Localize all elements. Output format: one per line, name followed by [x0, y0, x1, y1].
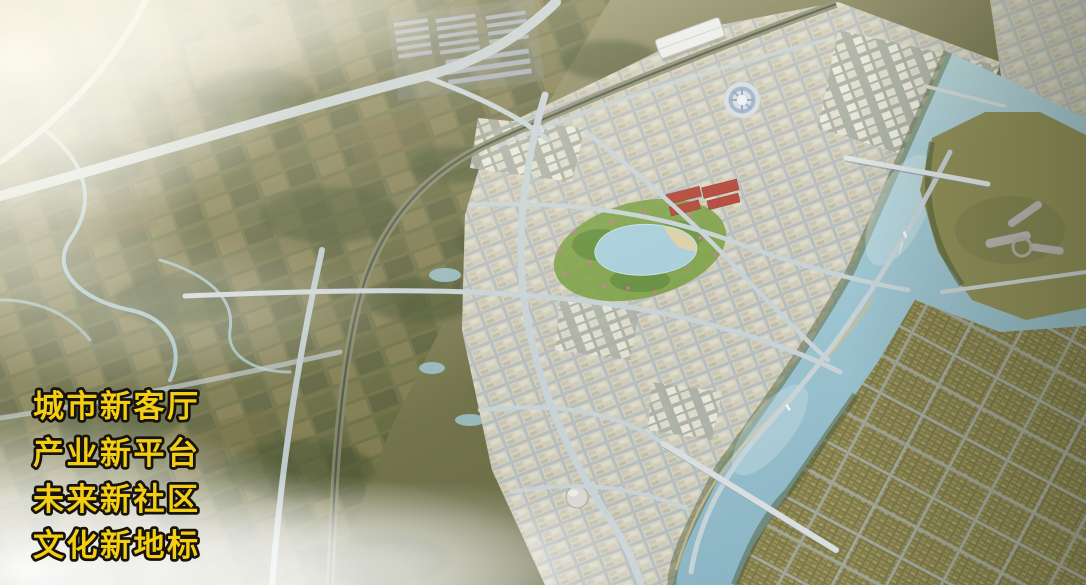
slogan-line-4: 文化新地标 — [33, 528, 201, 564]
slogan-line-1: 城市新客厅 — [33, 389, 201, 425]
slogan-line-3: 未来新社区 — [33, 482, 201, 518]
render-canvas: 城市新客厅 产业新平台 未来新社区 文化新地标 — [0, 0, 1086, 585]
masterplan-aerial-render: 城市新客厅 产业新平台 未来新社区 文化新地标 — [0, 0, 1086, 585]
slogan-line-2: 产业新平台 — [33, 436, 201, 472]
